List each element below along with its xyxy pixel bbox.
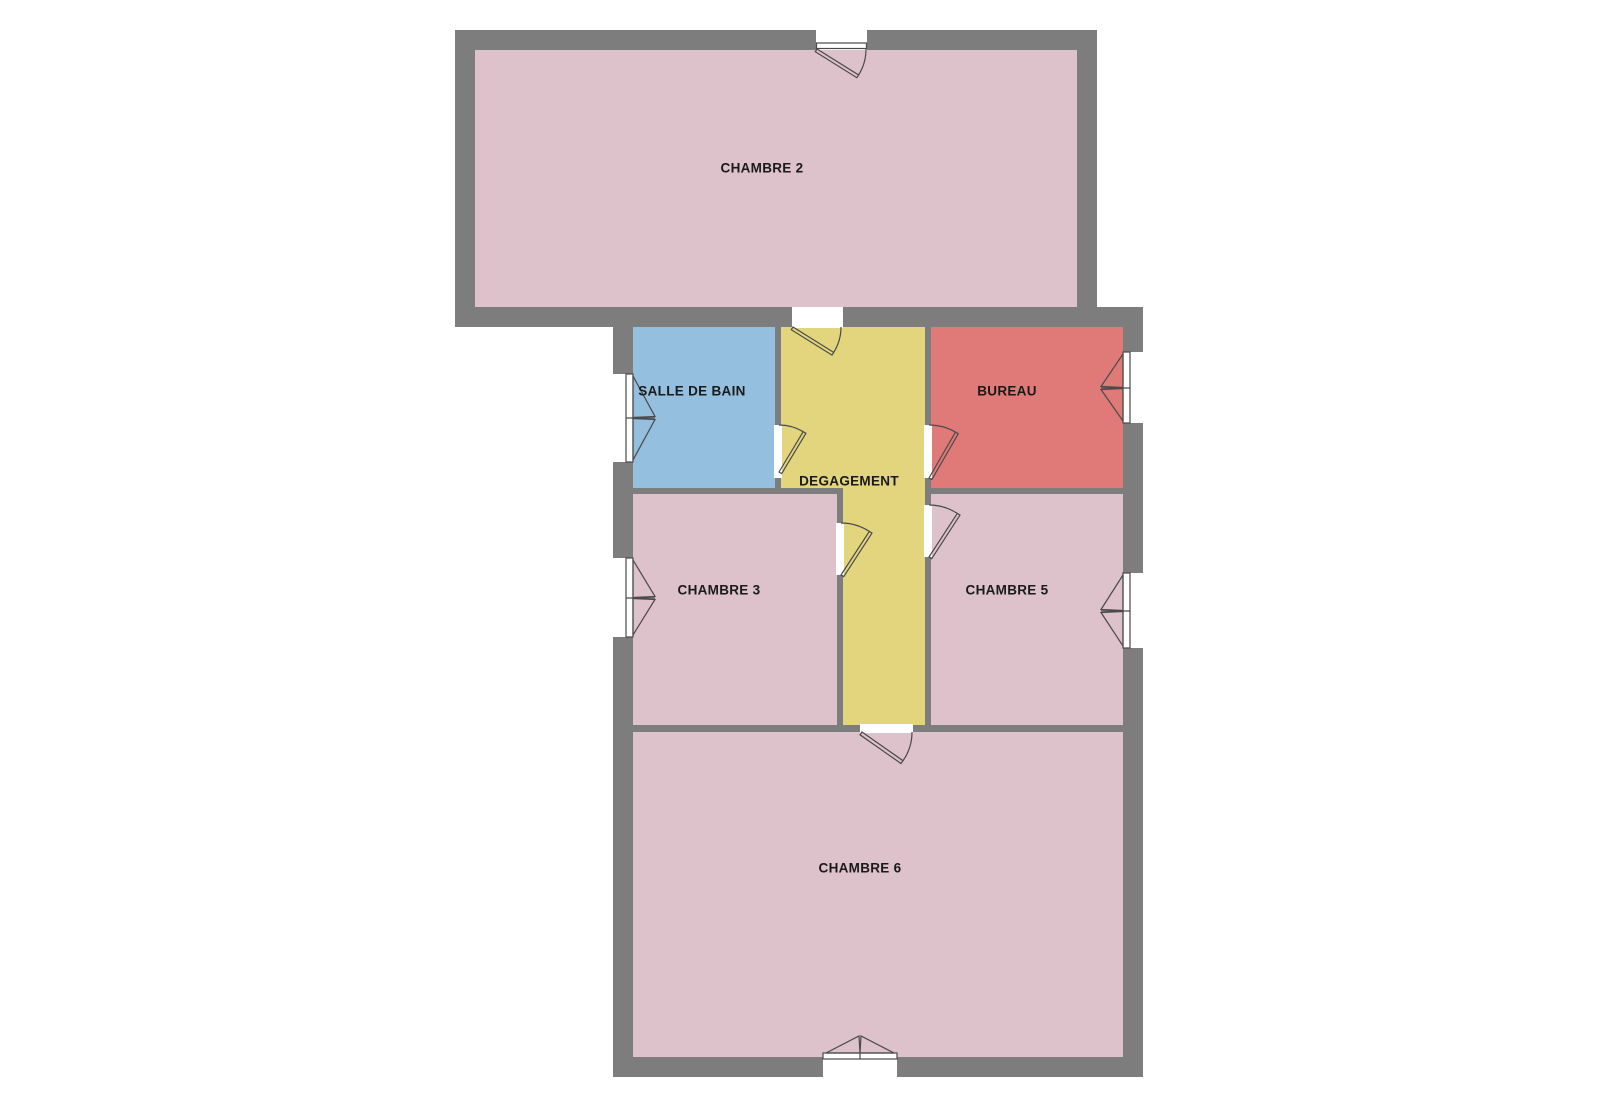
room-chambre-5 [931, 494, 1123, 725]
opening-sdb-window [613, 374, 633, 462]
wall-mid-left [633, 488, 843, 494]
wall-lower-top [613, 307, 1143, 327]
opening-chambre3-window [613, 558, 633, 637]
opening-chambre3-door [836, 523, 844, 575]
opening-chambre6-window [823, 1056, 897, 1077]
opening-bureau-window [1123, 352, 1143, 423]
room-salle-de-bain [633, 327, 775, 488]
room-bureau [931, 327, 1123, 488]
room-label-chambre-6: CHAMBRE 6 [819, 861, 902, 876]
opening-degagement-entry [792, 307, 843, 328]
room-label-degagement: DEGAGEMENT [799, 474, 899, 489]
room-label-bureau: BUREAU [977, 384, 1037, 399]
opening-chambre5-door [924, 505, 932, 557]
opening-chambre6-door [860, 724, 913, 733]
wall-mid-right [931, 488, 1123, 494]
room-chambre-2 [475, 50, 1077, 307]
opening-chambre5-window [1123, 573, 1143, 648]
room-chambre-3 [633, 494, 837, 725]
opening-sdb-door [774, 425, 782, 478]
opening-chambre2-entry [816, 30, 867, 50]
room-degagement-upper [781, 327, 925, 488]
room-degagement-corridor [843, 488, 925, 725]
room-label-chambre-3: CHAMBRE 3 [678, 583, 761, 598]
wall-upper-left [455, 30, 475, 327]
floor-plan: CHAMBRE 2 SALLE DE BAIN DEGAGEMENT BUREA… [0, 0, 1600, 1107]
room-label-salle-de-bain: SALLE DE BAIN [638, 384, 745, 399]
opening-bureau-door [924, 425, 932, 478]
room-label-chambre-5: CHAMBRE 5 [966, 583, 1049, 598]
wall-upper-right [1077, 30, 1097, 327]
wall-upper-top [455, 30, 1097, 50]
room-chambre-6 [633, 732, 1123, 1057]
room-label-chambre-2: CHAMBRE 2 [721, 161, 804, 176]
